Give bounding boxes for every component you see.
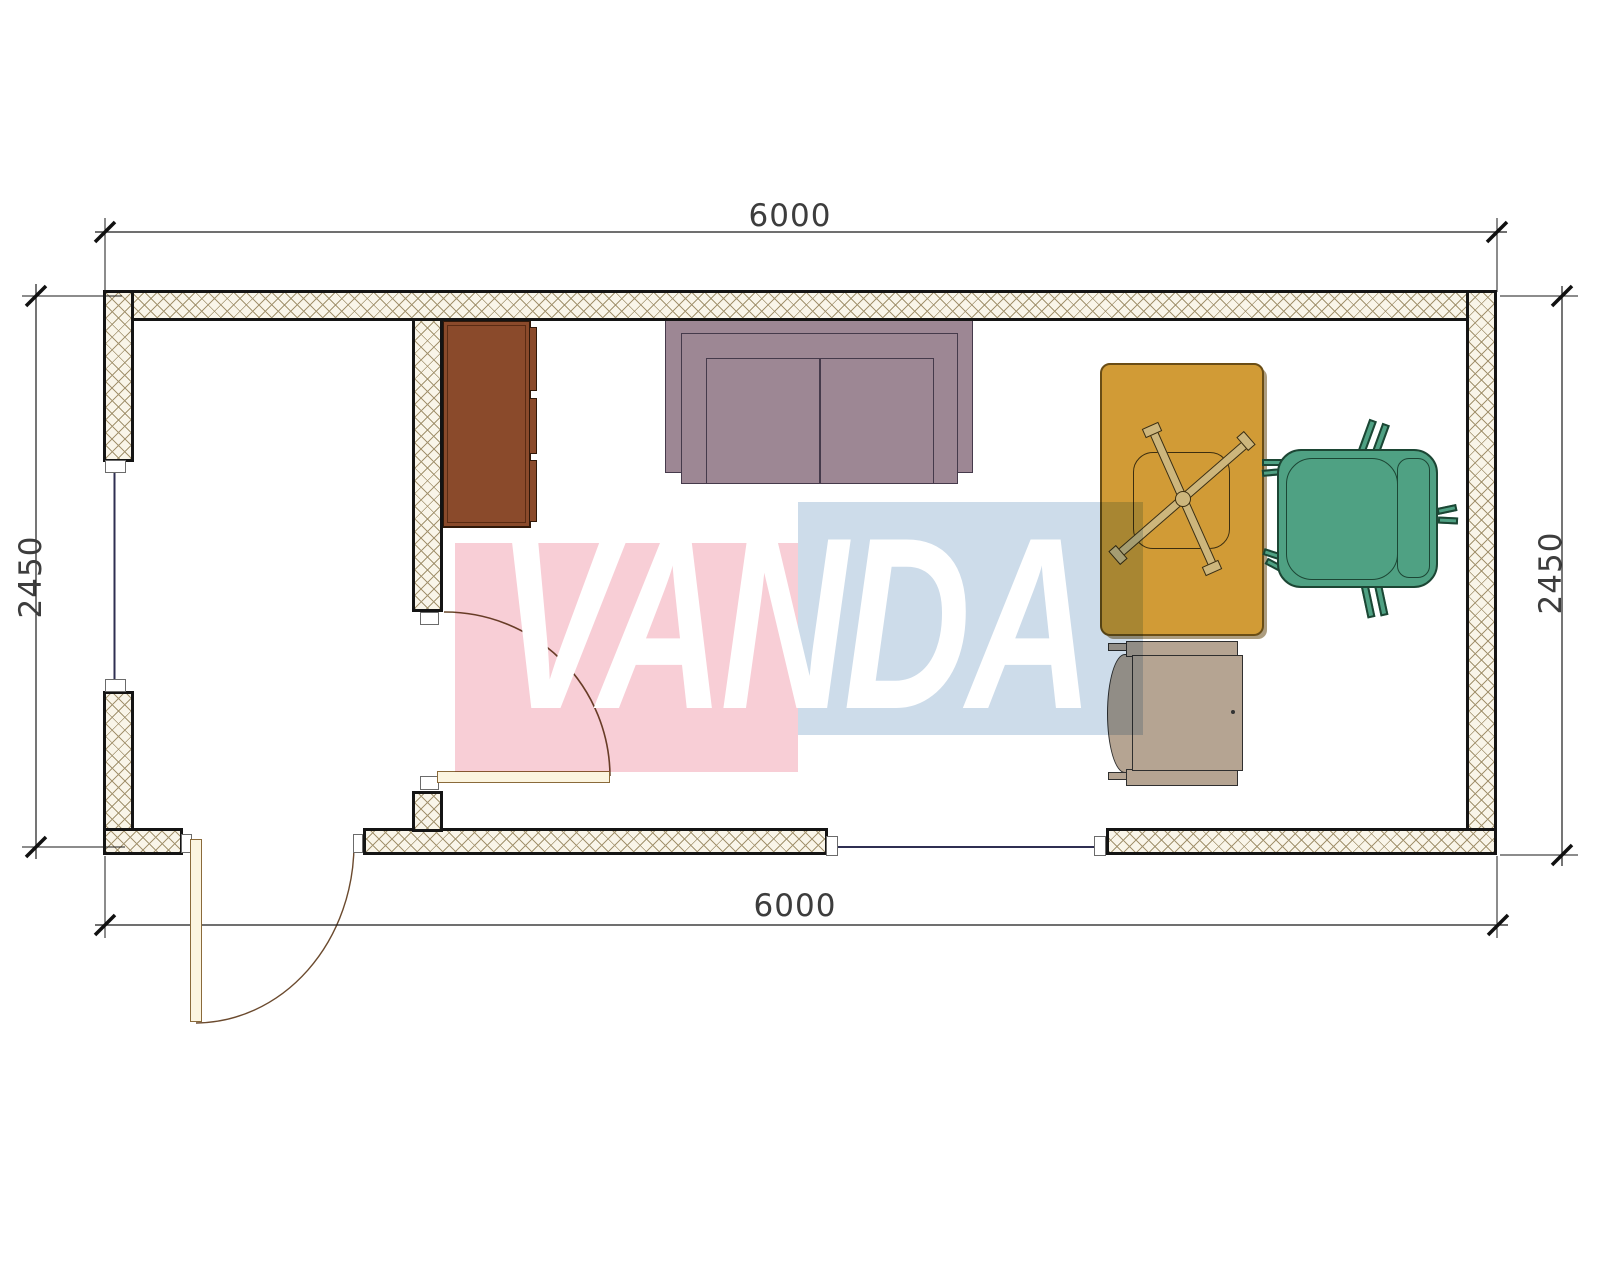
door-jamb [420,612,439,625]
window-jamb [826,836,838,856]
dimension-bottom: 6000 [715,888,875,924]
watermark-logo-text: VANDA [497,501,1090,746]
door-jamb [353,834,363,853]
exterior-door-leaf [190,839,202,1022]
floor-plan: VANDA 6000 6000 2450 2450 [0,0,1600,1280]
window-jamb [105,679,126,692]
dimension-right: 2450 [1533,532,1569,615]
dimension-left: 2450 [13,536,49,619]
interior-door-leaf [437,771,610,783]
exterior-door-arc [196,844,354,1023]
window-jamb [1094,836,1106,856]
dimension-top: 6000 [710,198,870,234]
window-jamb [105,460,126,473]
